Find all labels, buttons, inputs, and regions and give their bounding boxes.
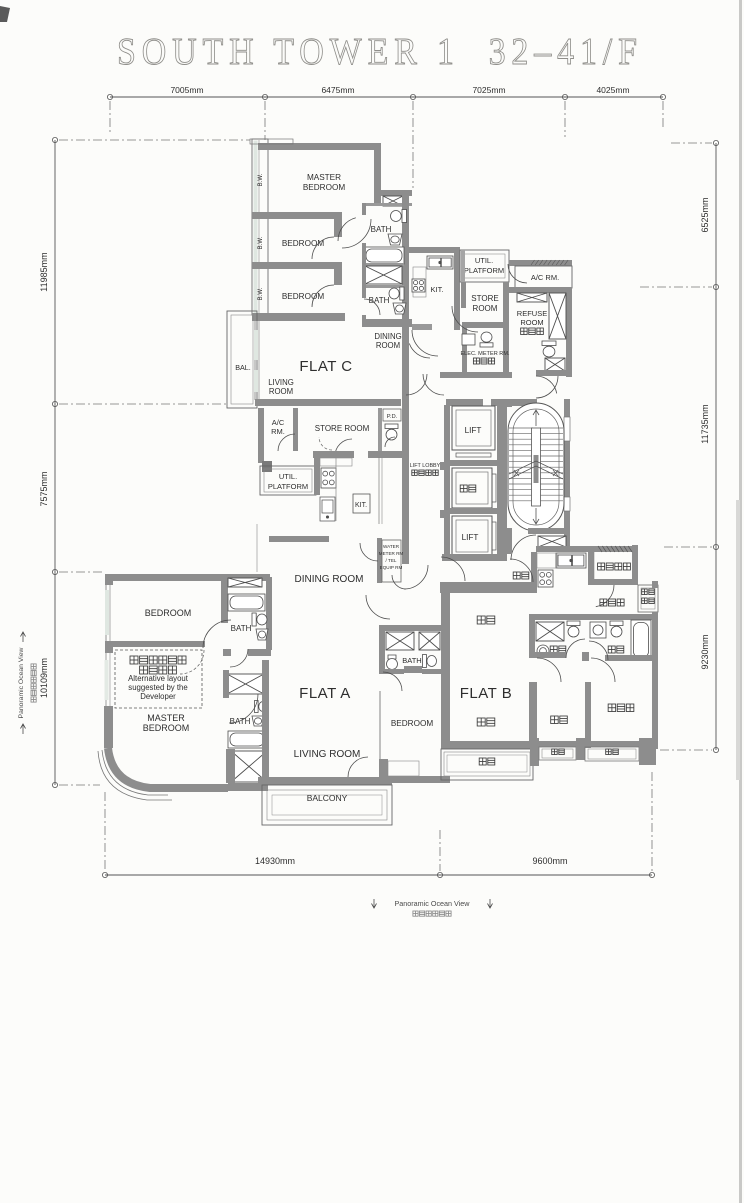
- svg-text:BATH: BATH: [231, 624, 252, 633]
- svg-text:7575mm: 7575mm: [39, 471, 49, 506]
- svg-text:REFUSE: REFUSE: [517, 309, 547, 318]
- svg-text:14930mm: 14930mm: [255, 856, 295, 866]
- svg-text:FLAT C: FLAT C: [299, 358, 352, 375]
- svg-text:7025mm: 7025mm: [472, 85, 505, 95]
- svg-text:SOUTH TOWER 1 32–41/F: SOUTH TOWER 1 32–41/F: [117, 30, 637, 72]
- svg-text:METER RM: METER RM: [379, 551, 404, 556]
- svg-text:FLAT A: FLAT A: [299, 685, 351, 702]
- svg-text:KIT.: KIT.: [355, 502, 367, 509]
- svg-text:6525mm: 6525mm: [700, 197, 710, 232]
- svg-text:BEDROOM: BEDROOM: [143, 723, 190, 733]
- svg-text:EQUIP RM: EQUIP RM: [380, 565, 403, 570]
- svg-text:Developer: Developer: [140, 692, 176, 701]
- svg-text:DINING: DINING: [374, 332, 401, 341]
- svg-text:7005mm: 7005mm: [170, 85, 203, 95]
- svg-text:BATH: BATH: [402, 656, 421, 665]
- svg-text:A/C: A/C: [272, 418, 285, 427]
- svg-text:BATH: BATH: [369, 296, 390, 305]
- svg-text:6475mm: 6475mm: [321, 85, 354, 95]
- svg-text:LIFT: LIFT: [465, 426, 482, 435]
- svg-text:BEDROOM: BEDROOM: [391, 719, 433, 728]
- svg-text:suggested by the: suggested by the: [128, 683, 187, 692]
- svg-text:BATH: BATH: [371, 225, 392, 234]
- svg-text:LIFT: LIFT: [462, 533, 479, 542]
- svg-text:11735mm: 11735mm: [700, 404, 710, 443]
- svg-text:ROOM: ROOM: [376, 341, 400, 350]
- svg-text:UTIL.: UTIL.: [475, 256, 493, 265]
- svg-text:BEDROOM: BEDROOM: [145, 608, 192, 618]
- svg-text:LIVING: LIVING: [268, 378, 294, 387]
- svg-text:ROOM: ROOM: [473, 304, 498, 313]
- svg-text:B.W.: B.W.: [258, 173, 264, 186]
- svg-text:BEDROOM: BEDROOM: [303, 183, 345, 192]
- svg-text:11985mm: 11985mm: [39, 252, 49, 291]
- svg-text:B.W.: B.W.: [258, 287, 264, 300]
- svg-text:RM.: RM.: [271, 427, 285, 436]
- svg-text:A/C RM.: A/C RM.: [531, 273, 559, 282]
- svg-text:Alternative layout: Alternative layout: [128, 674, 189, 683]
- svg-text:ROOM: ROOM: [269, 387, 293, 396]
- svg-text:LIFT LOBBY: LIFT LOBBY: [410, 463, 441, 469]
- svg-text:9230mm: 9230mm: [700, 634, 710, 669]
- svg-text:PLATFORM: PLATFORM: [464, 266, 504, 275]
- svg-text:ELEC. METER RM.: ELEC. METER RM.: [460, 351, 510, 357]
- svg-text:STORE: STORE: [471, 294, 498, 303]
- svg-text:B.W.: B.W.: [258, 236, 264, 249]
- svg-text:LIVING ROOM: LIVING ROOM: [294, 749, 361, 760]
- svg-text:MASTER: MASTER: [147, 713, 185, 723]
- svg-text:BALCONY: BALCONY: [307, 793, 348, 803]
- svg-text:4025mm: 4025mm: [596, 85, 629, 95]
- svg-text:ROOM: ROOM: [520, 318, 543, 327]
- svg-text:BAL.: BAL.: [235, 363, 251, 372]
- svg-text:KIT.: KIT.: [431, 285, 444, 294]
- svg-text:UTIL.: UTIL.: [279, 472, 297, 481]
- svg-text:P.D.: P.D.: [387, 414, 398, 420]
- svg-text:/ TEL: / TEL: [386, 558, 397, 563]
- svg-text:STORE ROOM: STORE ROOM: [315, 424, 370, 433]
- svg-text:BATH: BATH: [230, 717, 251, 726]
- svg-text:PLATFORM: PLATFORM: [268, 482, 308, 491]
- svg-text:Panoramic Ocean View: Panoramic Ocean View: [395, 899, 471, 908]
- svg-text:9600mm: 9600mm: [532, 856, 567, 866]
- svg-text:Panoramic Ocean View: Panoramic Ocean View: [18, 647, 25, 718]
- svg-text:MASTER: MASTER: [307, 173, 341, 182]
- svg-text:WATER: WATER: [383, 544, 400, 549]
- svg-text:10109mm: 10109mm: [39, 658, 49, 698]
- svg-text:FLAT B: FLAT B: [460, 685, 512, 702]
- svg-text:DINING ROOM: DINING ROOM: [295, 574, 364, 585]
- svg-text:BEDROOM: BEDROOM: [282, 292, 324, 301]
